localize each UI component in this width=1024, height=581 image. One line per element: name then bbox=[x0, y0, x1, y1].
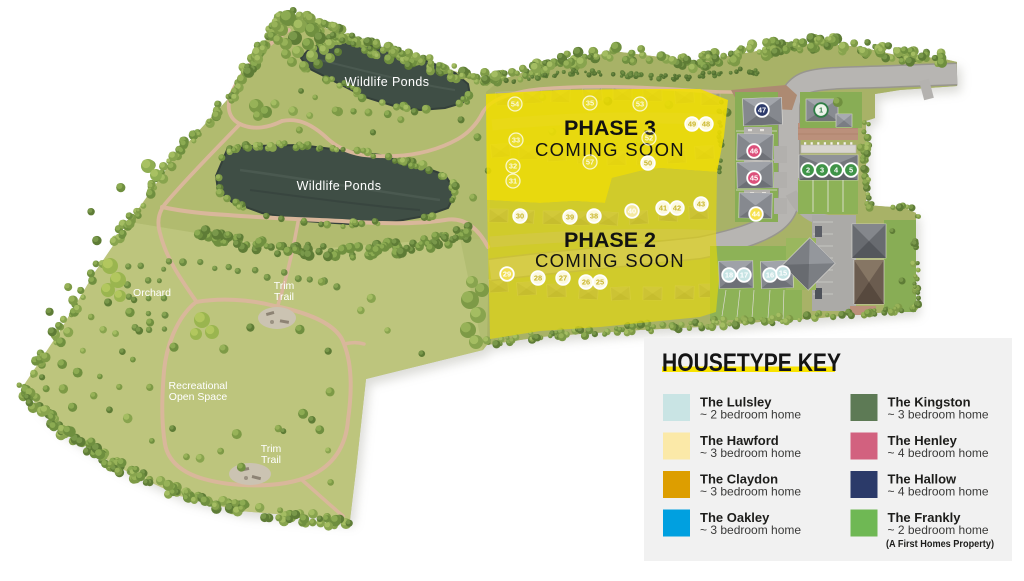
svg-text:~ 4 bedroom home: ~ 4 bedroom home bbox=[888, 446, 989, 460]
svg-text:41: 41 bbox=[659, 204, 667, 213]
svg-text:39: 39 bbox=[566, 213, 574, 222]
svg-text:Wildlife Ponds: Wildlife Ponds bbox=[297, 179, 382, 193]
svg-text:52: 52 bbox=[645, 134, 653, 143]
svg-text:48: 48 bbox=[702, 120, 710, 129]
svg-text:28: 28 bbox=[534, 274, 542, 283]
svg-text:~ 2 bedroom home: ~ 2 bedroom home bbox=[700, 408, 801, 422]
svg-text:(A First Homes Property): (A First Homes Property) bbox=[886, 539, 994, 550]
svg-text:COMING SOON: COMING SOON bbox=[535, 250, 685, 271]
svg-text:49: 49 bbox=[688, 120, 696, 129]
svg-text:43: 43 bbox=[697, 200, 705, 209]
svg-text:45: 45 bbox=[750, 174, 758, 183]
svg-text:26: 26 bbox=[582, 278, 590, 287]
svg-text:57: 57 bbox=[586, 158, 594, 167]
svg-text:~ 3 bedroom home: ~ 3 bedroom home bbox=[700, 485, 801, 499]
svg-text:29: 29 bbox=[503, 270, 511, 279]
svg-text:44: 44 bbox=[752, 210, 761, 219]
svg-text:31: 31 bbox=[509, 177, 517, 186]
svg-text:~ 4 bedroom home: ~ 4 bedroom home bbox=[888, 485, 989, 499]
svg-text:1: 1 bbox=[819, 106, 823, 115]
svg-text:18: 18 bbox=[725, 271, 733, 280]
svg-text:Trail: Trail bbox=[274, 291, 294, 303]
svg-text:35: 35 bbox=[586, 99, 594, 108]
svg-text:Open Space: Open Space bbox=[169, 391, 228, 403]
svg-text:30: 30 bbox=[516, 212, 524, 221]
svg-text:53: 53 bbox=[636, 100, 644, 109]
svg-text:47: 47 bbox=[758, 106, 766, 115]
svg-text:PHASE 2: PHASE 2 bbox=[564, 228, 656, 252]
svg-text:COMING SOON: COMING SOON bbox=[535, 139, 685, 160]
svg-text:Trail: Trail bbox=[261, 454, 281, 466]
svg-text:32: 32 bbox=[509, 162, 517, 171]
svg-text:25: 25 bbox=[596, 278, 604, 287]
svg-text:~ 3 bedroom home: ~ 3 bedroom home bbox=[888, 408, 989, 422]
svg-text:5: 5 bbox=[849, 166, 853, 175]
svg-text:Wildlife Ponds: Wildlife Ponds bbox=[345, 75, 430, 89]
svg-text:42: 42 bbox=[673, 204, 681, 213]
svg-text:46: 46 bbox=[750, 147, 758, 156]
svg-text:16: 16 bbox=[766, 271, 774, 280]
svg-text:~ 3 bedroom home: ~ 3 bedroom home bbox=[700, 446, 801, 460]
svg-text:~ 2 bedroom home: ~ 2 bedroom home bbox=[888, 523, 989, 537]
svg-text:27: 27 bbox=[559, 274, 567, 283]
svg-text:~ 3 bedroom home: ~ 3 bedroom home bbox=[700, 523, 801, 537]
svg-text:54: 54 bbox=[511, 100, 520, 109]
svg-text:50: 50 bbox=[644, 159, 652, 168]
svg-text:33: 33 bbox=[512, 136, 520, 145]
svg-text:HOUSETYPE KEY: HOUSETYPE KEY bbox=[662, 349, 841, 377]
svg-text:17: 17 bbox=[740, 271, 748, 280]
svg-text:2: 2 bbox=[806, 166, 810, 175]
svg-text:3: 3 bbox=[820, 166, 824, 175]
svg-text:38: 38 bbox=[590, 212, 598, 221]
svg-text:15: 15 bbox=[779, 269, 787, 278]
svg-text:40: 40 bbox=[628, 207, 636, 216]
svg-text:Orchard: Orchard bbox=[133, 287, 171, 299]
